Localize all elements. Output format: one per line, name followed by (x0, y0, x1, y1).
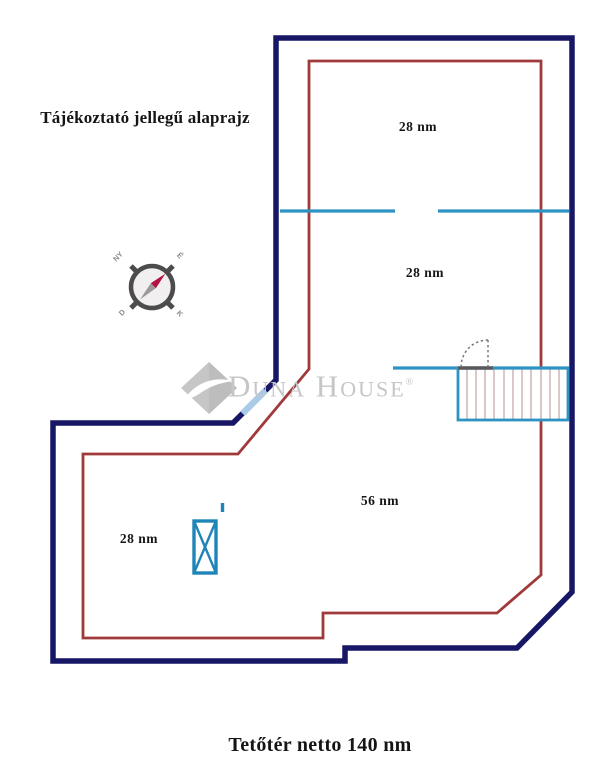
inner-wall-red-outline (83, 61, 541, 638)
room-area-label-top: 28 nm (386, 119, 450, 135)
room-area-label-left: 28 nm (107, 531, 171, 547)
dunahouse-wordmark: Duna House® (228, 366, 413, 403)
flue-symbol (194, 521, 216, 573)
door-swing-arc (461, 340, 488, 367)
plan-disclaimer-title: Tájékoztató jellegű alaprajz (25, 108, 265, 128)
room-area-label-middle: 28 nm (393, 265, 457, 281)
room-area-label-large: 56 nm (348, 493, 412, 509)
brand-text: Duna House (228, 368, 406, 403)
outer-wall-navy-outline (53, 38, 572, 661)
registered-mark: ® (406, 377, 414, 388)
total-area-caption: Tetőtér netto 140 nm (130, 734, 510, 757)
compass-icon (131, 266, 173, 308)
floorplan-page: Tájékoztató jellegű alaprajz 28 nm 28 nm… (0, 0, 600, 776)
